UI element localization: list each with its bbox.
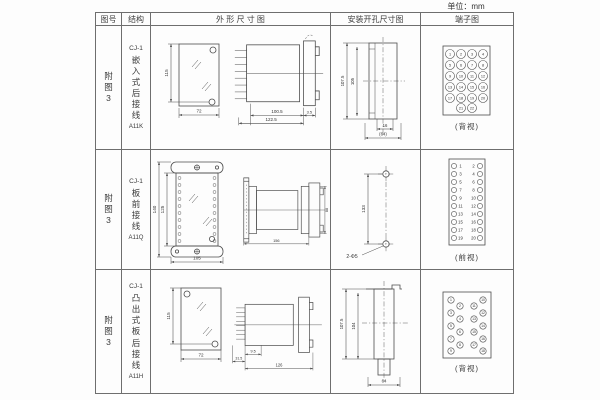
outline-side-drawing: 9.531.5126: [229, 277, 329, 387]
structure-name: 凸出式板后接线: [132, 293, 141, 370]
row1-outline-cell: 11572 100.5122.53.5: [151, 26, 331, 150]
spec-table: 图号 结构 外 形 尺 寸 图 安装开孔尺寸图 端子图 附图3 CJ-1 嵌入式…: [95, 12, 514, 394]
row2-outline-cell: 140125105 15688: [151, 150, 331, 270]
svg-text:3.5: 3.5: [307, 109, 313, 114]
svg-text:14: 14: [459, 85, 463, 89]
col-header-structure: 结构: [122, 13, 151, 26]
svg-text:88: 88: [324, 207, 329, 211]
svg-text:1: 1: [459, 163, 462, 168]
svg-text:1: 1: [450, 298, 452, 302]
fig-number: 附图3: [104, 193, 113, 226]
svg-text:156: 156: [273, 237, 279, 242]
mounting-hole-drawing: 107.510516(64): [335, 31, 417, 145]
svg-text:125: 125: [160, 205, 165, 213]
svg-text:12: 12: [471, 203, 476, 208]
svg-text:126: 126: [275, 362, 283, 367]
row1-structure-cell: CJ-1 嵌入式后接线 A11K: [122, 26, 151, 150]
model-code: A11H: [129, 374, 144, 380]
svg-text:105: 105: [193, 256, 201, 261]
col-header-mounting: 安装开孔尺寸图: [331, 13, 421, 26]
model-code: A11Q: [129, 235, 144, 241]
svg-text:12: 12: [481, 311, 485, 315]
row3-terminal-cell: 123456789101112131415161718 (背视): [421, 270, 513, 393]
svg-text:13: 13: [472, 317, 476, 321]
svg-text:4: 4: [482, 52, 484, 56]
svg-text:4: 4: [459, 317, 461, 321]
svg-text:2: 2: [472, 163, 475, 168]
svg-text:18: 18: [481, 349, 485, 353]
svg-text:11: 11: [472, 304, 476, 308]
svg-text:105: 105: [350, 77, 355, 85]
row1-terminal-cell: 12345678910111213141516171819202122 (背视): [421, 26, 513, 150]
terminal-diagram-back: 123456789101112131415161718: [439, 290, 495, 360]
svg-text:10: 10: [471, 195, 476, 200]
row2-structure-cell: CJ-1 板前接线 A11Q: [122, 150, 151, 270]
view-label: (背视): [455, 363, 479, 374]
svg-text:12: 12: [481, 74, 485, 78]
svg-text:8: 8: [472, 187, 475, 192]
svg-text:21: 21: [459, 106, 463, 110]
svg-text:16: 16: [382, 123, 387, 128]
svg-text:3: 3: [459, 171, 462, 176]
svg-text:15: 15: [458, 219, 463, 224]
outline-front-drawing: 140125105: [151, 152, 236, 267]
row2-terminal-cell: 1234567891011121314151617181920 (前视): [421, 150, 513, 270]
col-header-outline: 外 形 尺 寸 图: [151, 13, 331, 26]
svg-text:133: 133: [361, 205, 366, 213]
svg-text:115: 115: [166, 311, 171, 319]
row3-fig-cell: 附图3: [96, 270, 122, 393]
row1-mounting-cell: 107.510516(64): [331, 26, 421, 150]
outline-front-drawing: 11572: [151, 32, 226, 144]
outline-side-drawing: 100.5122.53.5: [227, 32, 330, 144]
svg-text:16: 16: [481, 337, 485, 341]
terminal-diagram-front: 1234567891011121314151617181920: [447, 157, 487, 249]
outline-side-drawing: 15688: [237, 160, 330, 260]
col-header-fig: 图号: [96, 13, 122, 26]
structure-name: 嵌入式后接线: [132, 55, 141, 121]
svg-text:5: 5: [450, 324, 452, 328]
structure-name: 板前接线: [132, 188, 141, 232]
svg-text:8: 8: [459, 343, 461, 347]
svg-text:17: 17: [458, 227, 463, 232]
svg-text:18: 18: [459, 96, 463, 100]
svg-text:100.5: 100.5: [271, 109, 283, 114]
model-name: CJ-1: [129, 45, 143, 52]
svg-text:15: 15: [470, 85, 474, 89]
model-name: CJ-1: [129, 178, 143, 185]
svg-text:6: 6: [472, 179, 475, 184]
svg-text:3: 3: [450, 311, 452, 315]
datasheet-page: { "unit": "单位：mm", "header": { "fig": "图…: [0, 0, 600, 400]
svg-text:9: 9: [450, 349, 452, 353]
svg-text:10: 10: [481, 298, 485, 302]
svg-text:20: 20: [481, 96, 485, 100]
terminal-diagram-back: 12345678910111213141516171819202122: [440, 44, 494, 118]
svg-text:6: 6: [460, 63, 462, 67]
col-header-terminal: 端子图: [421, 13, 513, 26]
svg-text:20: 20: [471, 235, 476, 240]
svg-text:11: 11: [470, 74, 474, 78]
svg-text:31.5: 31.5: [235, 356, 242, 360]
svg-text:14: 14: [481, 324, 485, 328]
svg-text:5: 5: [459, 179, 462, 184]
svg-text:6: 6: [459, 330, 461, 334]
svg-text:122.5: 122.5: [266, 116, 278, 121]
svg-text:22: 22: [470, 106, 474, 110]
svg-text:5: 5: [449, 63, 451, 67]
svg-text:9: 9: [449, 74, 451, 78]
svg-text:9: 9: [459, 195, 462, 200]
svg-text:19: 19: [470, 96, 474, 100]
svg-text:(64): (64): [379, 131, 387, 136]
view-label: (前视): [455, 252, 479, 263]
row3-mounting-cell: 107.510464: [331, 270, 421, 393]
svg-text:7: 7: [471, 63, 473, 67]
svg-text:4: 4: [472, 171, 475, 176]
row3-structure-cell: CJ-1 凸出式板后接线 A11H: [122, 270, 151, 393]
svg-text:13: 13: [458, 211, 463, 216]
svg-text:2: 2: [459, 304, 461, 308]
svg-text:115: 115: [164, 68, 169, 76]
svg-text:14: 14: [471, 211, 476, 216]
svg-text:16: 16: [481, 85, 485, 89]
view-label: (背视): [455, 121, 479, 132]
svg-text:13: 13: [448, 85, 452, 89]
row1-fig-cell: 附图3: [96, 26, 122, 150]
mounting-hole-drawing: 107.510464: [336, 273, 416, 391]
svg-text:9.5: 9.5: [250, 349, 255, 353]
svg-text:11: 11: [458, 203, 463, 208]
svg-text:8: 8: [482, 63, 484, 67]
svg-text:1: 1: [449, 52, 451, 56]
svg-text:104: 104: [351, 321, 356, 329]
outline-front-drawing: 11572: [153, 276, 228, 388]
svg-text:10: 10: [459, 74, 463, 78]
svg-text:2-Φ5: 2-Φ5: [346, 254, 357, 260]
svg-text:64: 64: [381, 378, 386, 383]
svg-text:17: 17: [472, 343, 476, 347]
unit-label: 单位：mm: [418, 1, 514, 12]
model-name: CJ-1: [129, 283, 143, 290]
svg-text:19: 19: [458, 235, 463, 240]
row2-mounting-cell: 133 2-Φ5: [331, 150, 421, 270]
svg-text:2: 2: [460, 52, 462, 56]
fig-number: 附图3: [104, 71, 113, 104]
model-code: A11K: [129, 124, 143, 130]
fig-number: 附图3: [104, 315, 113, 348]
row3-outline-cell: 11572 9.531.5126: [151, 270, 331, 393]
mounting-hole-drawing: 133 2-Φ5: [338, 152, 413, 267]
svg-text:15: 15: [472, 330, 476, 334]
svg-text:140: 140: [152, 205, 157, 213]
svg-text:16: 16: [471, 219, 476, 224]
svg-text:17: 17: [448, 96, 452, 100]
row2-fig-cell: 附图3: [96, 150, 122, 270]
svg-text:7: 7: [459, 187, 462, 192]
svg-text:7: 7: [450, 337, 452, 341]
svg-text:72: 72: [198, 352, 204, 357]
svg-text:72: 72: [196, 108, 202, 113]
svg-text:3: 3: [471, 52, 473, 56]
svg-text:18: 18: [471, 227, 476, 232]
svg-text:107.5: 107.5: [340, 75, 345, 86]
svg-text:107.5: 107.5: [339, 318, 344, 329]
